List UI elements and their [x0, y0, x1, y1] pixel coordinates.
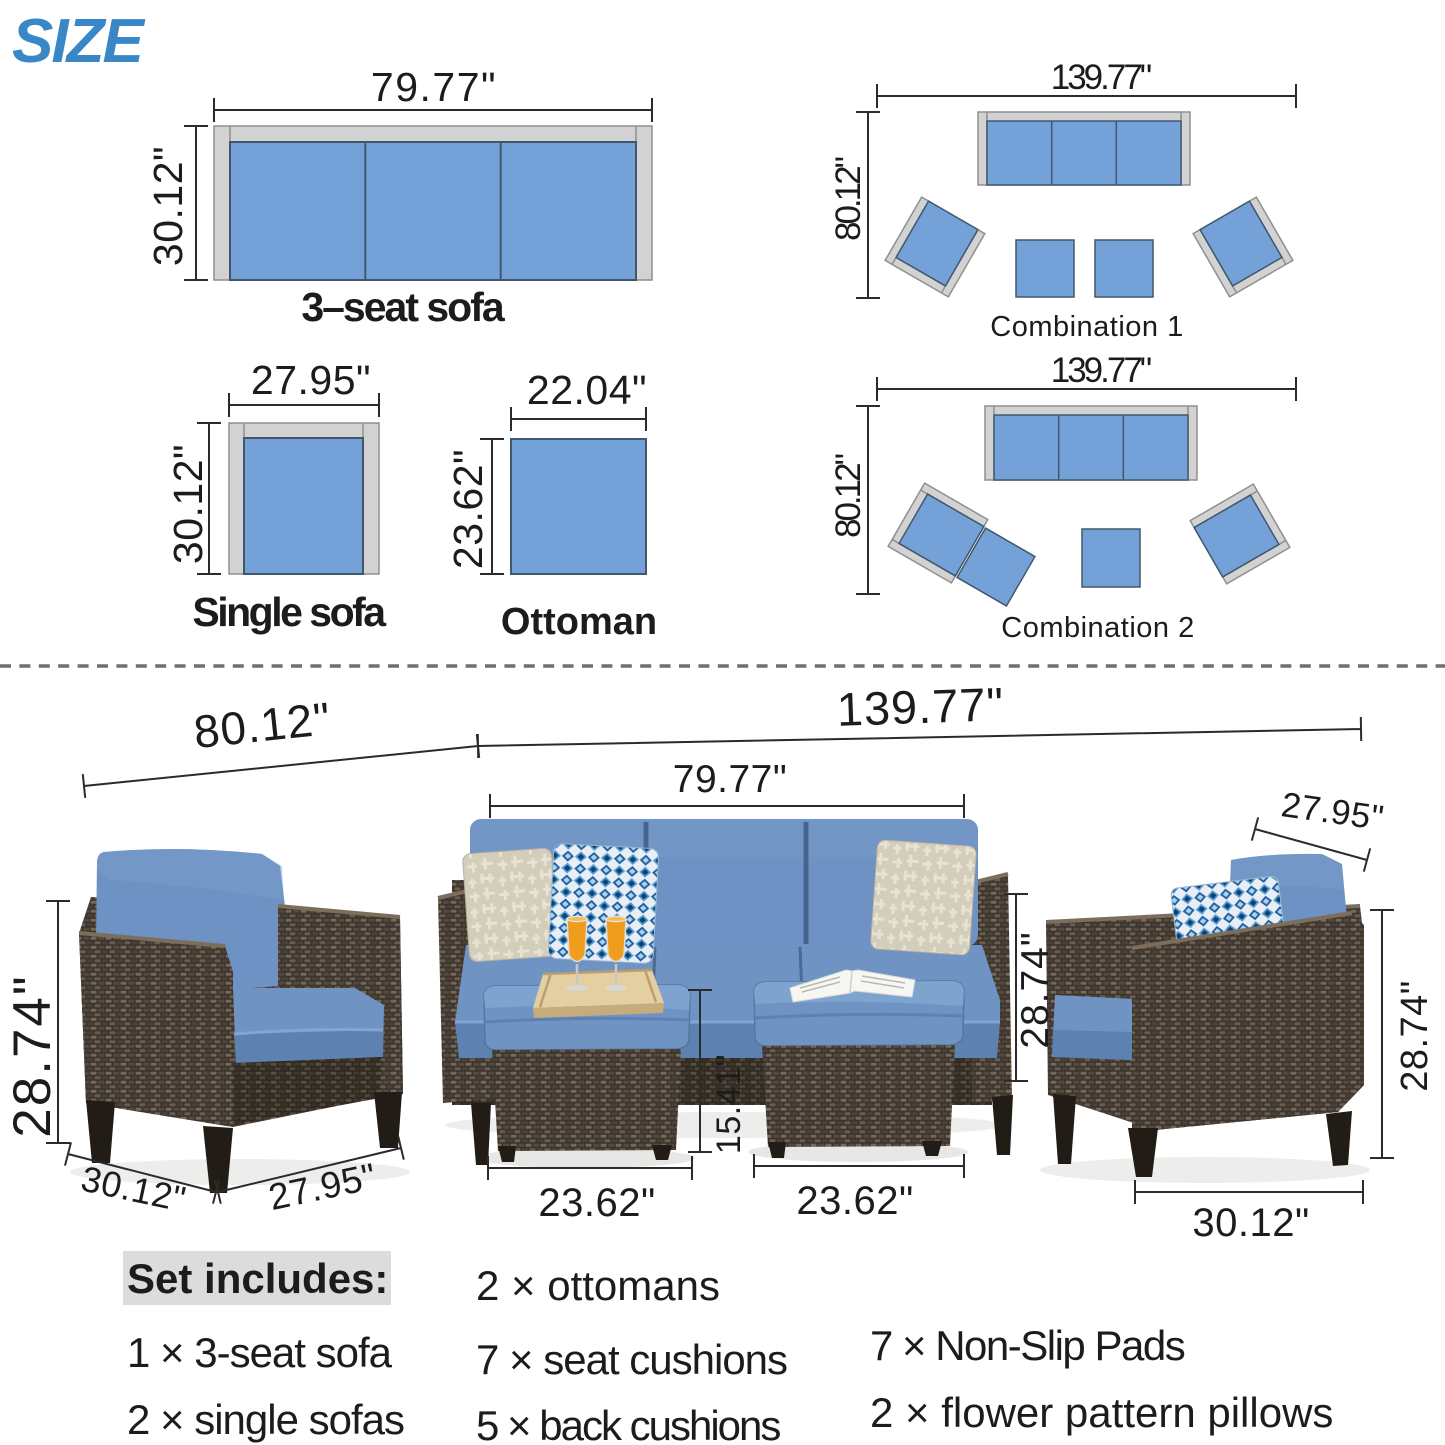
svg-text:Ottoman: Ottoman	[501, 601, 657, 643]
svg-text:23.62": 23.62"	[445, 449, 491, 569]
svg-text:139.77": 139.77"	[1051, 58, 1151, 97]
svg-text:22.04": 22.04"	[527, 367, 647, 413]
svg-text:23.62": 23.62"	[796, 1179, 913, 1223]
svg-text:79.77": 79.77"	[673, 758, 787, 801]
svg-text:2 × flower pattern pillows: 2 × flower pattern pillows	[870, 1389, 1333, 1436]
svg-text:28.74": 28.74"	[1014, 931, 1057, 1048]
svg-text:2 × ottomans: 2 × ottomans	[476, 1262, 720, 1309]
svg-text:28.74": 28.74"	[3, 974, 62, 1137]
svg-text:3–seat sofa: 3–seat sofa	[301, 284, 506, 330]
svg-text:28.74": 28.74"	[1394, 980, 1436, 1092]
svg-text:1 × 3-seat sofa: 1 × 3-seat sofa	[127, 1329, 393, 1376]
svg-text:80.12": 80.12"	[829, 454, 868, 538]
svg-text:2 × single sofas: 2 × single sofas	[127, 1396, 404, 1443]
svg-text:7 × Non-Slip Pads: 7 × Non-Slip Pads	[870, 1322, 1185, 1369]
svg-text:Single sofa: Single sofa	[192, 589, 387, 635]
svg-text:139.77": 139.77"	[836, 677, 1005, 736]
svg-text:23.62": 23.62"	[538, 1181, 655, 1225]
svg-text:139.77": 139.77"	[1051, 351, 1151, 390]
svg-text:5 × back cushions: 5 × back cushions	[476, 1402, 780, 1445]
svg-text:Set includes:: Set includes:	[127, 1255, 388, 1302]
svg-text:Combination 1: Combination 1	[990, 311, 1184, 343]
svg-text:15.41": 15.41"	[710, 1054, 748, 1154]
svg-text:30.12": 30.12"	[165, 444, 211, 564]
svg-text:30.12": 30.12"	[145, 146, 191, 266]
svg-text:Combination 2: Combination 2	[1001, 612, 1195, 644]
svg-text:27.95": 27.95"	[251, 357, 371, 403]
svg-text:30.12": 30.12"	[1192, 1201, 1309, 1245]
svg-text:7 × seat cushions: 7 × seat cushions	[476, 1336, 787, 1383]
svg-text:SIZE: SIZE	[12, 7, 145, 76]
svg-text:80.12": 80.12"	[829, 157, 868, 241]
svg-text:79.77": 79.77"	[371, 64, 497, 110]
